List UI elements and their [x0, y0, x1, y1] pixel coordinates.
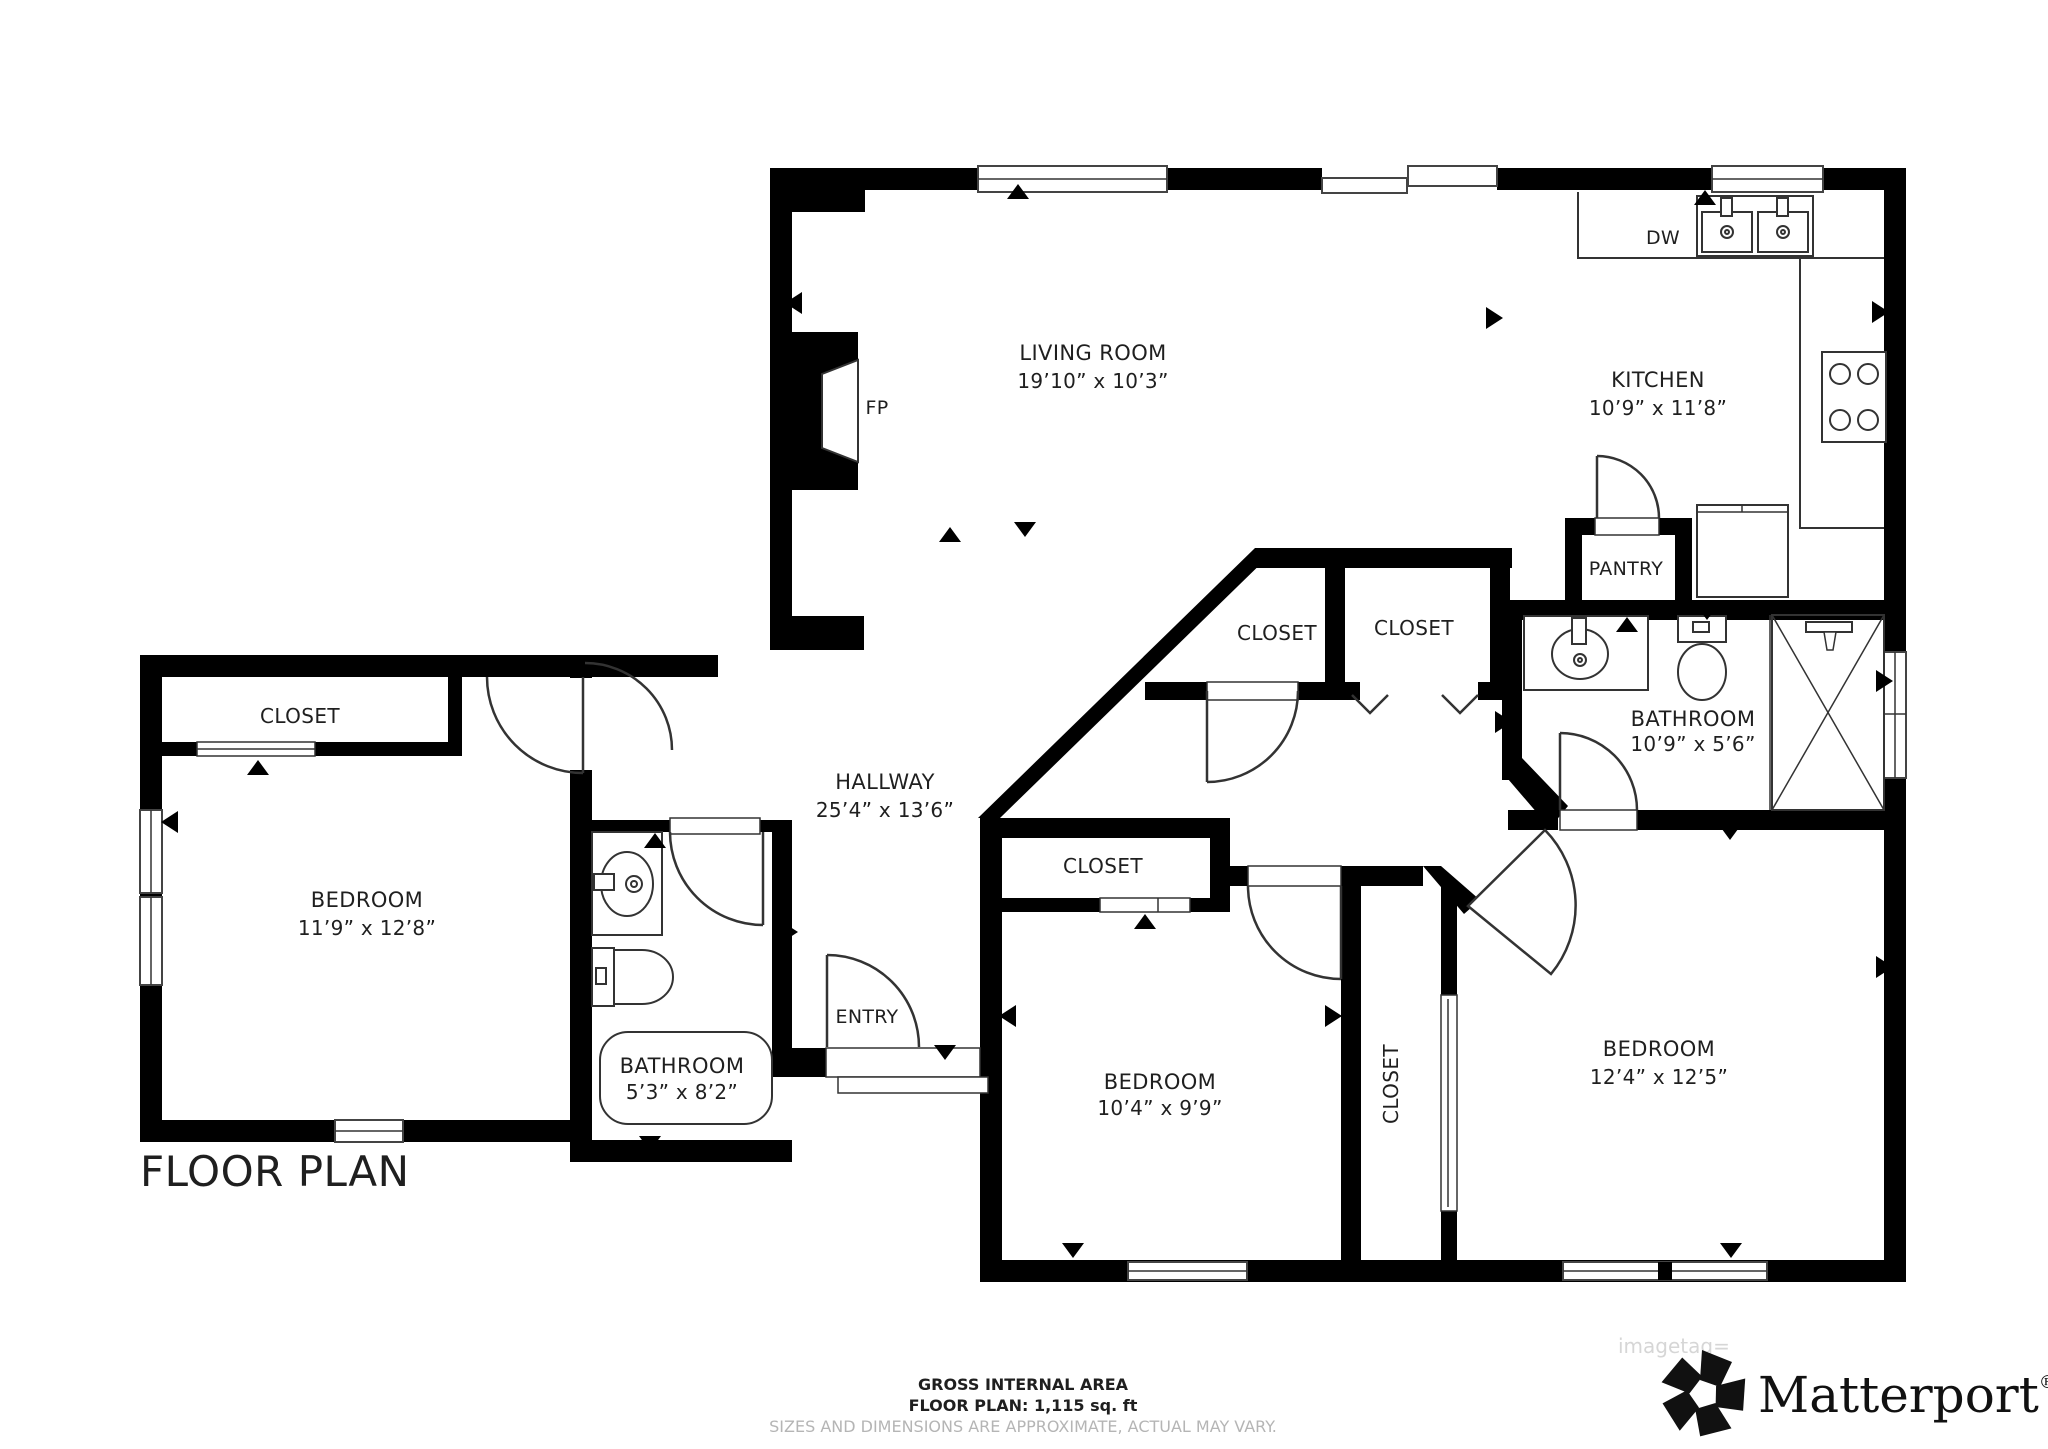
bathroom-main-label: BATHROOM: [1631, 707, 1756, 731]
entry-door-arc: [827, 955, 919, 1047]
shower-head-icon: [1806, 622, 1852, 632]
footer-area-value: FLOOR PLAN: 1,115 sq. ft: [909, 1396, 1138, 1415]
refrigerator: [1697, 505, 1788, 597]
stove: [1822, 352, 1886, 442]
bathroom-main-dims: 10’9” x 5’6”: [1630, 732, 1755, 756]
matterport-logo: Matterport®: [1655, 1350, 2048, 1446]
footer-area-label: GROSS INTERNAL AREA: [918, 1375, 1129, 1394]
kitchen-dims: 10’9” x 11’8”: [1589, 396, 1727, 420]
watermark: imagetag=: [1618, 1334, 1730, 1358]
bathroom-small-dims: 5’3” x 8’2”: [626, 1080, 738, 1104]
closet-vertical-label: CLOSET: [1379, 1044, 1403, 1124]
pantry-door-arc: [1597, 456, 1659, 518]
fireplace-label: FP: [866, 397, 889, 419]
living-room-label: LIVING ROOM: [1019, 341, 1166, 365]
bathroom-small-toilet: [592, 948, 673, 1006]
closet-bedroom-left-label: CLOSET: [260, 704, 340, 728]
page-title: FLOOR PLAN: [140, 1147, 410, 1196]
bedroom-right-door-fan: [1468, 830, 1576, 974]
floor-plan-drawing: LIVING ROOM 19’10” x 10’3” KITCHEN 10’9”…: [0, 0, 2048, 1449]
bathroom-main-door-arc: [1560, 733, 1637, 810]
hall-closet-door-arc: [1207, 691, 1298, 782]
kitchen-label: KITCHEN: [1611, 368, 1705, 392]
registered-mark: ®: [2039, 1372, 2048, 1393]
bathroom-small-label: BATHROOM: [620, 1054, 745, 1078]
closet-bedroom-middle-label: CLOSET: [1063, 854, 1143, 878]
bedroom-right-label: BEDROOM: [1603, 1037, 1715, 1061]
hallway-dims: 25’4” x 13’6”: [816, 798, 954, 822]
entry-label: ENTRY: [836, 1006, 899, 1028]
shower: [1770, 615, 1884, 810]
hallway-label: HALLWAY: [835, 770, 935, 794]
footer-disclaimer: SIZES AND DIMENSIONS ARE APPROXIMATE, AC…: [769, 1417, 1277, 1436]
fireplace: [822, 360, 858, 462]
bathtub: [600, 1032, 772, 1124]
bedroom-left-dims: 11’9” x 12’8”: [298, 916, 436, 940]
bathroom-main-toilet: [1678, 616, 1726, 700]
footer: GROSS INTERNAL AREA FLOOR PLAN: 1,115 sq…: [769, 1375, 1277, 1436]
living-room-dims: 19’10” x 10’3”: [1017, 369, 1168, 393]
pantry-label: PANTRY: [1589, 558, 1664, 580]
closet-hall-square-label: CLOSET: [1374, 616, 1454, 640]
bedroom-middle-dims: 10’4” x 9’9”: [1097, 1096, 1222, 1120]
bedroom-right-dims: 12’4” x 12’5”: [1590, 1065, 1728, 1089]
bedroom-middle-door-arc: [1248, 886, 1341, 979]
bathroom-small-door-arc: [670, 832, 763, 925]
bedroom-middle-label: BEDROOM: [1104, 1070, 1216, 1094]
closet-hall-angled-label: CLOSET: [1237, 621, 1317, 645]
bedroom-left-label: BEDROOM: [311, 888, 423, 912]
dishwasher-label: DW: [1646, 227, 1680, 249]
floor-plan-page: LIVING ROOM 19’10” x 10’3” KITCHEN 10’9”…: [0, 0, 2048, 1449]
brand-name: Matterport®: [1758, 1366, 2048, 1424]
matterport-logo-icon: [1655, 1350, 1754, 1446]
bedroom-left-door-arc: [487, 677, 583, 773]
